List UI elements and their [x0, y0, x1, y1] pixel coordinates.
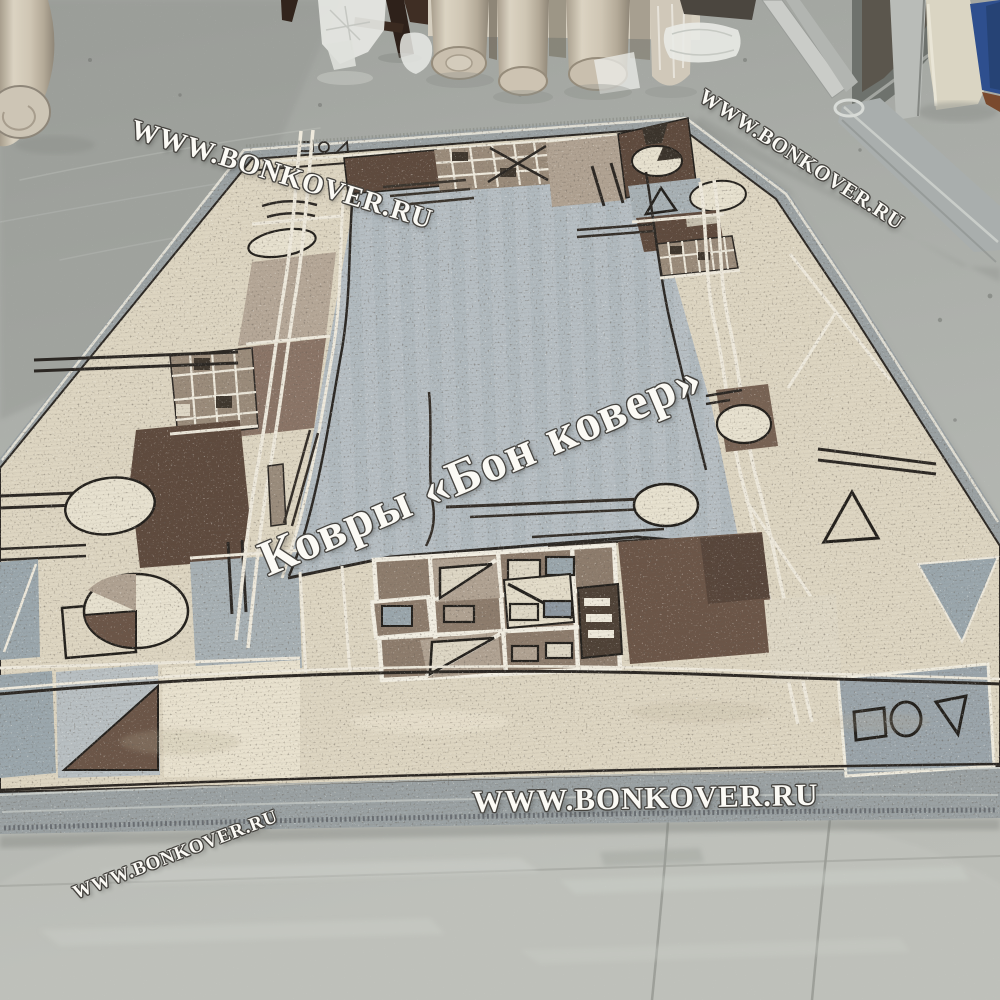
- small-plastic-roll: [664, 22, 741, 62]
- watermark-bottom: WWW.BONKOVER.RU: [472, 777, 819, 820]
- carpet-roll-2: [497, 0, 549, 95]
- carpet-roll-1: [431, 0, 489, 79]
- carpet-showroom-photo: WWW.BONKOVER.RU WWW.BONKOVER.RU Ковры «Б…: [0, 0, 1000, 1000]
